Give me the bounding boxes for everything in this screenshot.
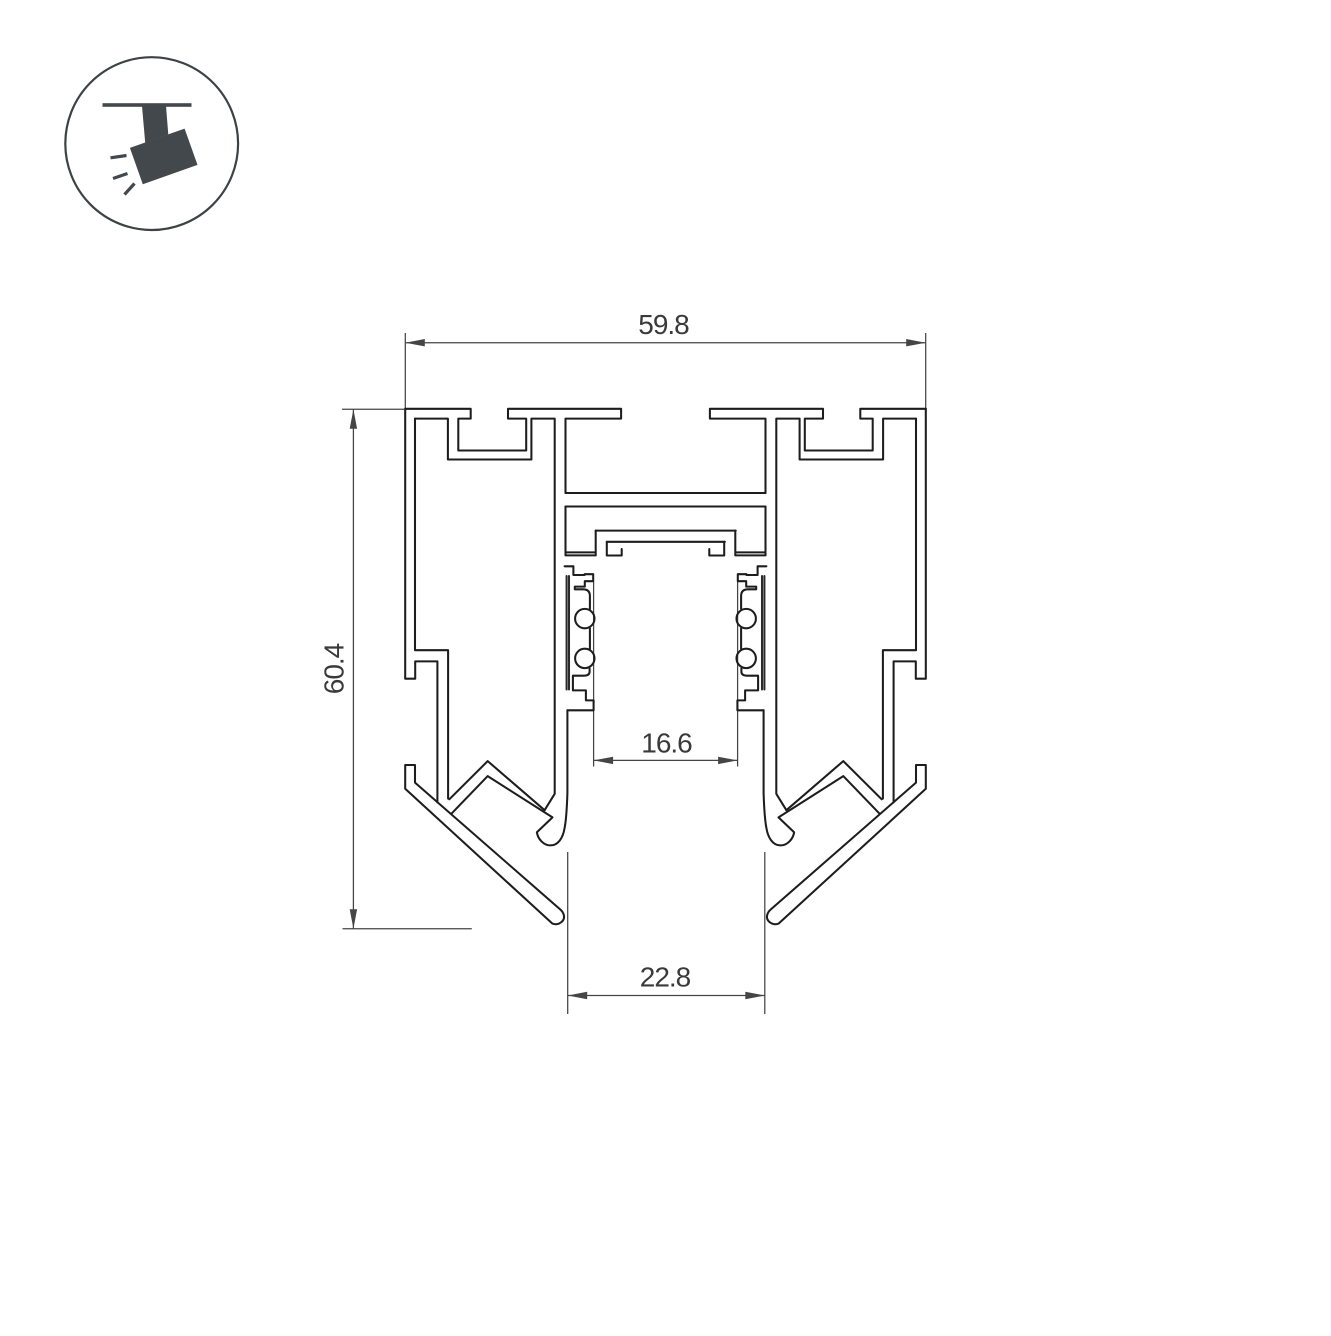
svg-text:22.8: 22.8: [640, 962, 691, 993]
svg-text:60.4: 60.4: [319, 643, 350, 694]
svg-text:59.8: 59.8: [638, 309, 689, 340]
svg-text:16.6: 16.6: [641, 728, 692, 759]
